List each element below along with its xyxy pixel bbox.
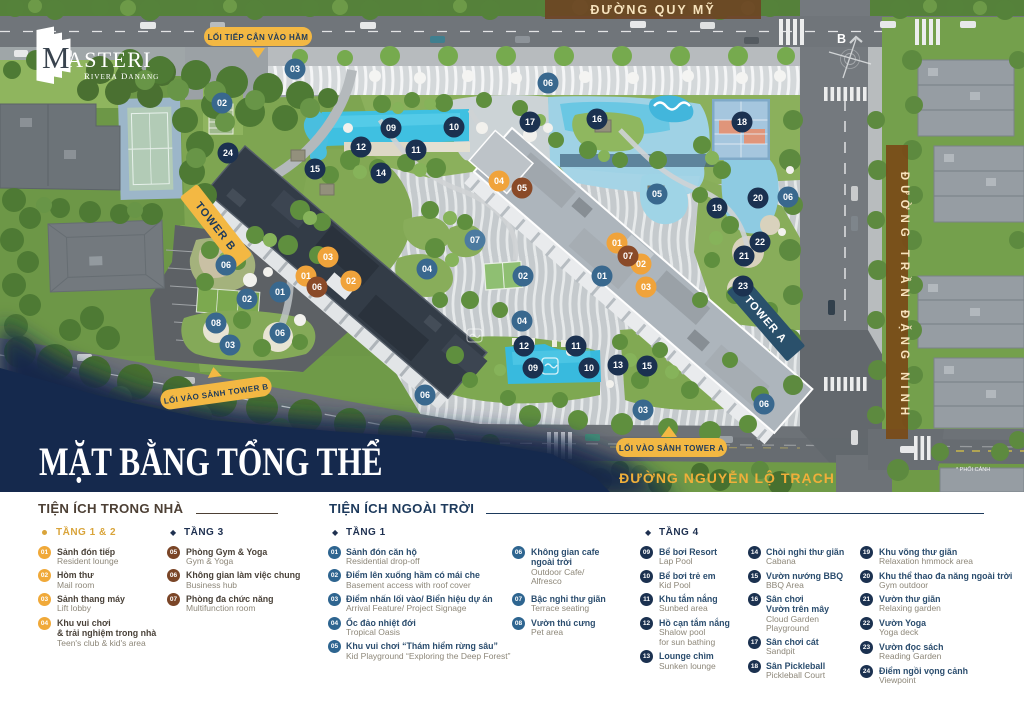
svg-text:RIVERA DANANG: RIVERA DANANG xyxy=(84,71,159,81)
svg-text:14: 14 xyxy=(376,168,386,178)
svg-text:17: 17 xyxy=(525,117,535,127)
svg-text:ĐƯỜNG QUY MỸ: ĐƯỜNG QUY MỸ xyxy=(590,2,715,17)
svg-text:10: 10 xyxy=(584,363,594,373)
svg-text:03: 03 xyxy=(638,405,648,415)
svg-text:06: 06 xyxy=(275,328,285,338)
svg-text:* PHỐI CẢNH: * PHỐI CẢNH xyxy=(956,466,990,473)
svg-text:02: 02 xyxy=(636,259,646,269)
svg-text:18: 18 xyxy=(737,117,747,127)
svg-text:MẶT BẰNG TỔNG THỂ: MẶT BẰNG TỔNG THỂ xyxy=(39,438,383,484)
svg-text:M: M xyxy=(42,40,70,75)
svg-text:12: 12 xyxy=(356,142,366,152)
svg-text:06: 06 xyxy=(783,192,793,202)
svg-text:03: 03 xyxy=(290,64,300,74)
svg-text:ĐƯỜNG NGUYỄN LỘ TRẠCH: ĐƯỜNG NGUYỄN LỘ TRẠCH xyxy=(619,469,835,486)
svg-text:06: 06 xyxy=(312,282,322,292)
svg-text:04: 04 xyxy=(517,316,527,326)
svg-text:04: 04 xyxy=(422,264,432,274)
svg-text:09: 09 xyxy=(528,363,538,373)
svg-text:02: 02 xyxy=(217,98,227,108)
svg-text:B: B xyxy=(837,32,846,46)
svg-text:ĐƯỜNG TRẦN ĐẶNG NINH: ĐƯỜNG TRẦN ĐẶNG NINH xyxy=(898,172,911,420)
svg-text:03: 03 xyxy=(323,252,333,262)
svg-text:05: 05 xyxy=(517,183,527,193)
svg-text:LỐI VÀO SẢNH TOWER A: LỐI VÀO SẢNH TOWER A xyxy=(619,443,724,453)
svg-text:07: 07 xyxy=(623,251,633,261)
svg-text:03: 03 xyxy=(225,340,235,350)
svg-text:02: 02 xyxy=(518,271,528,281)
svg-text:02: 02 xyxy=(346,276,356,286)
svg-text:23: 23 xyxy=(738,281,748,291)
svg-text:24: 24 xyxy=(223,148,233,158)
svg-text:04: 04 xyxy=(494,176,504,186)
svg-text:ASTERI: ASTERI xyxy=(67,47,152,72)
svg-text:22: 22 xyxy=(755,237,765,247)
svg-text:11: 11 xyxy=(411,145,421,155)
svg-text:06: 06 xyxy=(759,399,769,409)
svg-text:07: 07 xyxy=(470,235,480,245)
svg-text:21: 21 xyxy=(739,251,749,261)
svg-text:08: 08 xyxy=(211,318,221,328)
svg-text:01: 01 xyxy=(275,287,285,297)
svg-text:03: 03 xyxy=(641,282,651,292)
svg-text:09: 09 xyxy=(386,123,396,133)
svg-text:06: 06 xyxy=(221,260,231,270)
svg-text:10: 10 xyxy=(449,122,459,132)
svg-text:11: 11 xyxy=(571,341,581,351)
svg-text:19: 19 xyxy=(712,203,722,213)
svg-text:LỐI TIẾP CẬN VÀO HẦM: LỐI TIẾP CẬN VÀO HẦM xyxy=(208,32,309,42)
svg-text:15: 15 xyxy=(642,361,652,371)
svg-text:02: 02 xyxy=(242,294,252,304)
svg-text:05: 05 xyxy=(652,189,662,199)
svg-text:12: 12 xyxy=(519,341,529,351)
svg-text:16: 16 xyxy=(592,114,602,124)
svg-text:06: 06 xyxy=(543,78,553,88)
svg-text:01: 01 xyxy=(612,238,622,248)
svg-text:06: 06 xyxy=(420,390,430,400)
svg-text:01: 01 xyxy=(597,271,607,281)
svg-text:15: 15 xyxy=(310,164,320,174)
svg-text:13: 13 xyxy=(613,360,623,370)
svg-text:20: 20 xyxy=(753,193,763,203)
